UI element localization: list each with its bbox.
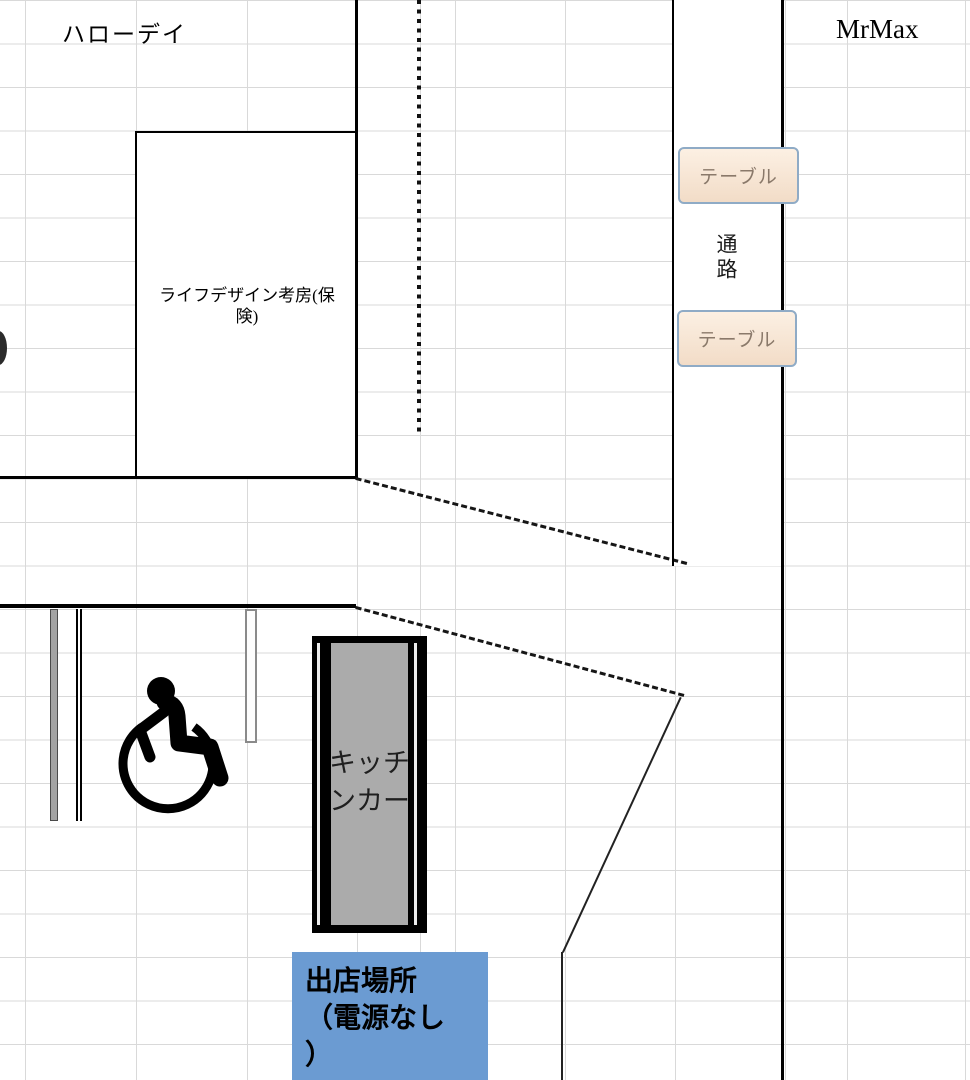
building-wall-vertical [355, 0, 358, 478]
table-label: テーブル [699, 162, 778, 189]
table-box-top: テーブル [678, 147, 799, 204]
grid-column-line [25, 0, 26, 1080]
grid-column-line [847, 0, 848, 1080]
store-map-canvas: ハローデイ MrMax ライフデザイン考房(保険) 通路 テーブル テーブル キ… [0, 0, 970, 1080]
spot-box: 出店場所 （電源なし ） [292, 952, 488, 1080]
spot-label-line: 出店場所 [305, 962, 488, 999]
pillar-double-line [76, 609, 82, 821]
boundary-vertical-line [561, 952, 563, 1080]
grid-column-line [455, 0, 456, 1080]
store-label-halloday: ハローデイ [62, 15, 187, 49]
grid-column-line [565, 0, 566, 1080]
store-label-mrmax: MrMax [836, 14, 919, 45]
cropped-shape [0, 331, 7, 365]
table-label: テーブル [698, 325, 777, 352]
spot-label-line: （電源なし [305, 999, 488, 1036]
dotted-divider-line [417, 0, 421, 434]
grid-column-line [965, 0, 966, 1080]
corridor-left-wall [672, 0, 675, 566]
tenant-box: ライフデザイン考房(保険) [135, 131, 357, 479]
dashed-line-upper [355, 477, 687, 565]
pillar-gray [50, 609, 58, 821]
building-wall-horizontal-lower [0, 604, 356, 608]
aisle-corridor [672, 0, 782, 566]
kitchen-car-label: キッチ ンカー [312, 744, 427, 820]
boundary-diagonal-line [562, 697, 682, 953]
building-wall-horizontal-upper [0, 476, 357, 479]
tenant-label: ライフデザイン考房(保険) [155, 285, 339, 327]
table-box-bottom: テーブル [677, 310, 797, 367]
aisle-label: 通路 [711, 233, 741, 283]
spot-label-line: ） [305, 1036, 488, 1073]
wheelchair-icon [116, 664, 234, 814]
pillar-white [245, 609, 257, 743]
kitchen-car-box: キッチ ンカー [312, 636, 427, 933]
